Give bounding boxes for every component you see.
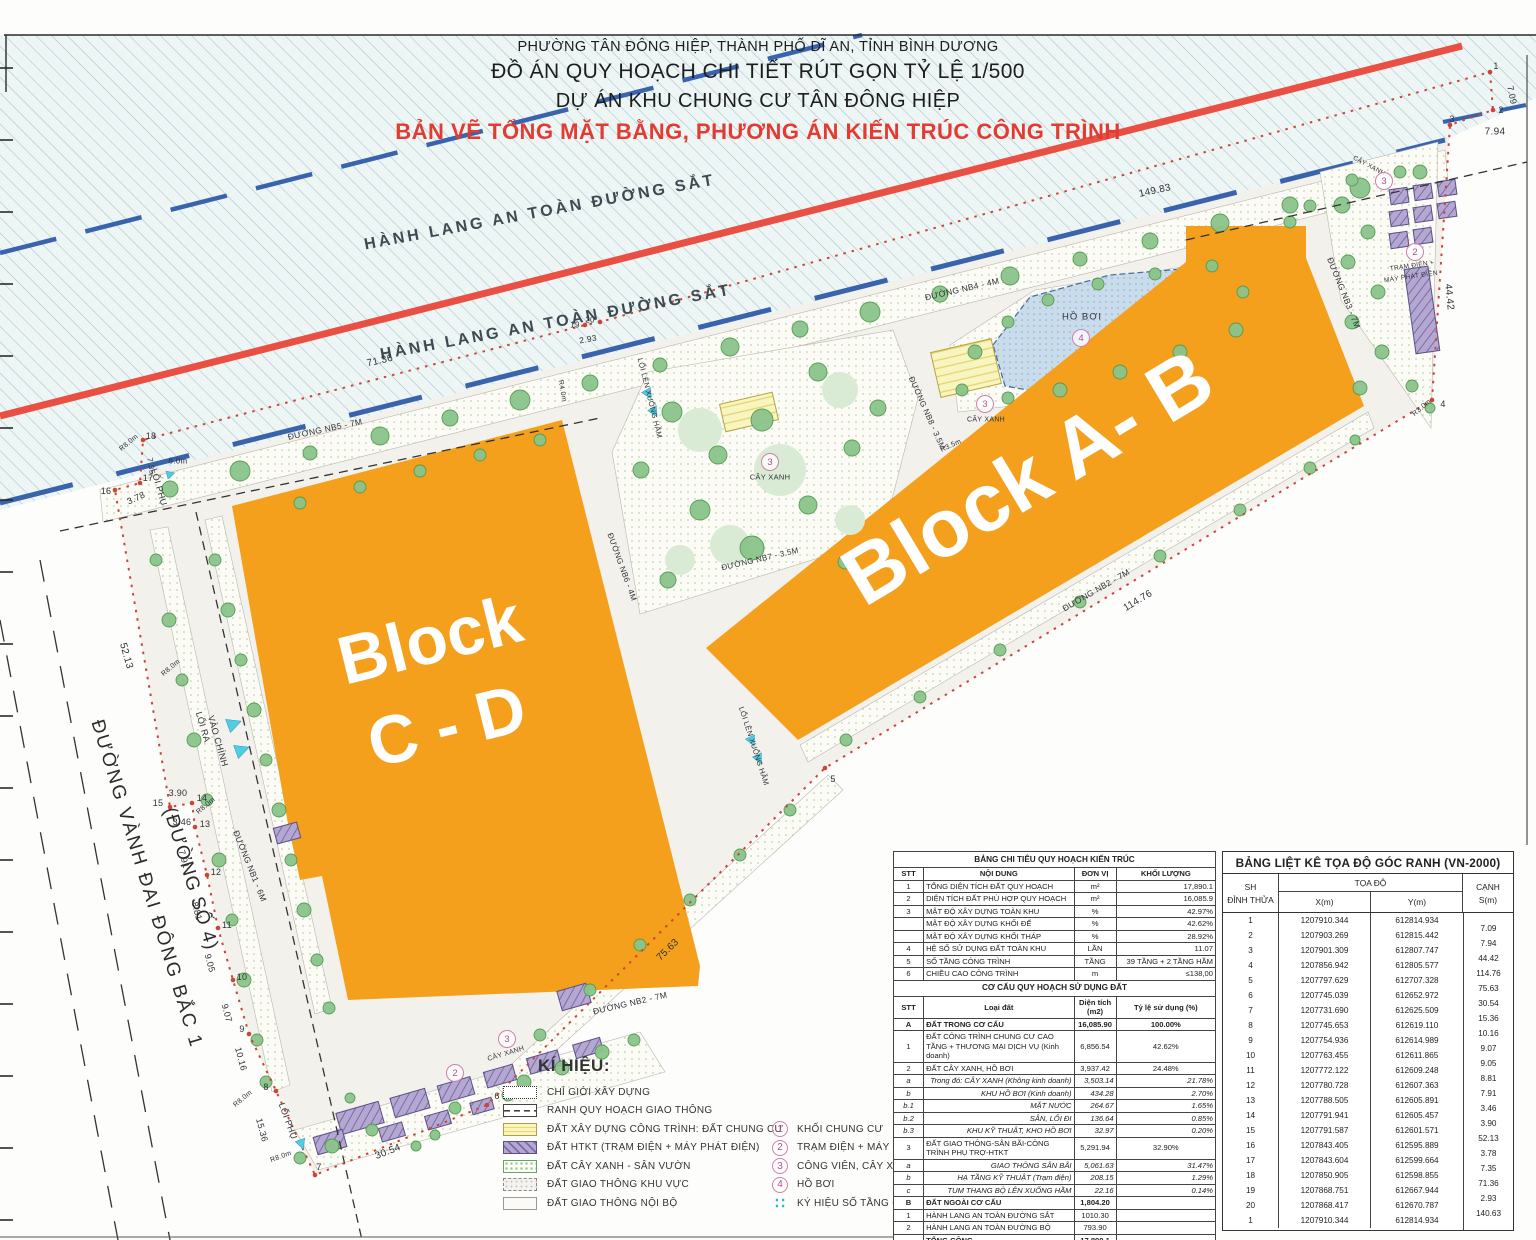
table-row: 5SỐ TẦNG CÔNG TRÌNH TẦNG39 TẦNG + 2 TẦNG… [894, 955, 1216, 967]
legend-item-label: ĐẤT CÂY XANH - SÂN VƯỜN [547, 1161, 691, 1172]
legend-item: RANH QUY HOẠCH GIAO THÔNG [503, 1104, 783, 1118]
table-row: AĐẤT TRONG CƠ CẤU 16,085.90100.00% [894, 1018, 1216, 1030]
legend-item-label: ĐẤT GIAO THÔNG KHU VỰC [547, 1179, 689, 1190]
table-row: b.2SÂN, LỐI ĐI 136.640.85% [894, 1112, 1216, 1124]
plan-label: 18 [146, 431, 157, 441]
edge-length-value: 8.81 [1464, 1071, 1513, 1086]
table-row: TỔNG CỘNG 17,890.1 [894, 1234, 1216, 1240]
legend-item: ĐẤT HTKT (TRẠM ĐIỆN + MÁY PHÁT ĐIỆN) [503, 1141, 783, 1155]
legend-symbol: 3 [772, 1158, 788, 1174]
sheet-title-line: BẢN VẼ TỔNG MẶT BẰNG, PHƯƠNG ÁN KIẾN TRÚ… [395, 115, 1120, 149]
table-row: 2DIỆN TÍCH ĐẤT PHÙ HỢP QUY HOẠCH m²16,08… [894, 893, 1216, 905]
plan-label: 1 [1493, 61, 1498, 71]
table-row: 1HÀNH LANG AN TOÀN ĐƯỜNG SẮT 1010.30 [894, 1209, 1216, 1221]
plan-label: HỒ BƠI [1062, 312, 1102, 323]
circled-number: 4 [1072, 329, 1090, 347]
table-header-row: STTNỘI DUNG ĐƠN VỊKHỐI LƯỢNG [894, 868, 1216, 880]
legend-item-label: RANH QUY HOẠCH GIAO THÔNG [547, 1105, 712, 1116]
table-row: 3ĐẤT GIAO THÔNG-SÂN BÃI-CÔNG TRÌNH PHỤ T… [894, 1137, 1216, 1159]
legend-item-label: HỒ BƠI [797, 1179, 835, 1190]
table-row: 3MẬT ĐỘ XÂY DỰNG TOÀN KHU %42.97% [894, 905, 1216, 917]
legend-swatch [503, 1141, 537, 1154]
plan-label: 9 [239, 1024, 244, 1034]
table-row: 6CHIỀU CAO CÔNG TRÌNH m≤138,00 [894, 968, 1216, 980]
edge-length-value: 3.46 [1464, 1101, 1513, 1116]
plan-label: 6.0m [169, 457, 188, 466]
legend-item: ĐẤT XÂY DỰNG CÔNG TRÌNH: ĐẤT CHUNG CƯ [503, 1122, 783, 1136]
legend-item: ĐẤT CÂY XANH - SÂN VƯỜN [503, 1159, 783, 1173]
table-row: 2ĐẤT CÂY XANH, HỒ BƠI 3,937.4224.48% [894, 1062, 1216, 1074]
circled-number: 3 [1375, 172, 1393, 190]
plan-label: 16 [101, 486, 112, 496]
edge-length-value: 9.05 [1464, 1056, 1513, 1071]
plan-label: 3.90 [169, 788, 188, 798]
legend-item: CHỈ GIỚI XÂY DỰNG [503, 1085, 783, 1099]
legend-item-label: KHỐI CHUNG CƯ [797, 1124, 883, 1135]
legend-swatch [503, 1178, 537, 1191]
table-row: 1ĐẤT CÔNG TRÌNH CHUNG CƯ CAO TẦNG + THƯƠ… [894, 1031, 1216, 1062]
locality-line: PHƯỜNG TÂN ĐÔNG HIỆP, THÀNH PHỐ DĨ AN, T… [395, 38, 1120, 57]
edge-length-value: 30.54 [1464, 996, 1513, 1011]
plan-label: 3 [1449, 114, 1454, 124]
planning-indicators-table: BẢNG CHI TIÊU QUY HOẠCH KIẾN TRÚC STTNỘI… [893, 851, 1216, 1240]
legend-swatch [503, 1197, 537, 1210]
project-name-line: DỰ ÁN KHU CHUNG CƯ TÂN ĐÔNG HIỆP [395, 87, 1120, 115]
plan-label: 4 [1440, 399, 1445, 409]
plan-label: 13 [200, 819, 211, 829]
plan-label: 7 [316, 1162, 321, 1172]
site-plan-drawing: PHƯỜNG TÂN ĐÔNG HIỆP, THÀNH PHỐ DĨ AN, T… [0, 0, 1536, 1240]
legend-swatch [503, 1086, 537, 1099]
edge-length-value: 10.16 [1464, 1026, 1513, 1041]
table-row: cTUM THANG BỘ LÊN XUỐNG HẦM 22.160.14% [894, 1184, 1216, 1196]
legend-item-label: CHỈ GIỚI XÂY DỰNG [547, 1087, 650, 1098]
plan-label: 15 [153, 798, 164, 808]
edge-length-value: 7.35 [1464, 1161, 1513, 1176]
table-row: b.1MẶT NƯỚC 264.671.65% [894, 1100, 1216, 1112]
edge-length-value: 7.91 [1464, 1086, 1513, 1101]
plan-label: 10 [237, 972, 248, 982]
edge-length-value: 15.36 [1464, 1011, 1513, 1026]
plan-label: 5 [830, 774, 835, 784]
legend-symbol: 2 [772, 1140, 788, 1156]
table-row: MẬT ĐỘ XÂY DỰNG KHỐI ĐẾ %42.62% [894, 918, 1216, 930]
circled-number: 3 [761, 453, 779, 471]
edge-length-value: 71.36 [1464, 1176, 1513, 1191]
legend-title: KÍ HIỆU: [538, 1056, 610, 1076]
circled-number: 2 [1406, 243, 1424, 261]
plan-label: 7.94 [1485, 127, 1506, 138]
legend-item: ĐẤT GIAO THÔNG KHU VỰC [503, 1178, 783, 1192]
edge-length-value: 52.13 [1464, 1131, 1513, 1146]
project-type-line: ĐỒ ÁN QUY HOẠCH CHI TIẾT RÚT GỌN TỶ LỆ 1… [395, 57, 1120, 87]
legend-item-label: ĐẤT GIAO THÔNG NỘI BỘ [547, 1198, 677, 1209]
table-row: bKHU HỒ BƠI (Kinh doanh) 434.282.70% [894, 1087, 1216, 1099]
plan-label: 2 [1498, 105, 1503, 115]
legend-symbol: 4 [772, 1177, 788, 1193]
plan-label: 11 [222, 920, 232, 930]
plan-label: 17 [143, 473, 154, 483]
legend-swatch [503, 1160, 537, 1173]
edge-length-value: 3.78 [1464, 1146, 1513, 1161]
legend-item-label: ĐẤT HTKT (TRẠM ĐIỆN + MÁY PHÁT ĐIỆN) [547, 1142, 760, 1153]
plan-label: 6 [494, 1091, 499, 1101]
plan-label: CÂY XANH [750, 473, 791, 482]
table-header-row: SH ĐỈNH THỬA TỌA ĐỘ X(m) Y(m) CẠNH S(m) [1223, 874, 1513, 913]
table-row: BĐẤT NGOÀI CƠ CẤU 1,804.20 [894, 1197, 1216, 1209]
drawing-title-block: PHƯỜNG TÂN ĐÔNG HIỆP, THÀNH PHỐ DĨ AN, T… [395, 38, 1120, 149]
legend-symbol: 1 [772, 1121, 788, 1137]
edge-length-value: 7.94 [1464, 936, 1513, 951]
table-row: aGIAO THÔNG SÂN BÃI 5,061.6331.47% [894, 1159, 1216, 1171]
circled-number: 3 [498, 1030, 516, 1048]
edge-length-value: 140.63 [1464, 1206, 1513, 1221]
table-row: aTrong đó: CÂY XANH (Không kinh doanh) 3… [894, 1075, 1216, 1087]
legend-item: ĐẤT GIAO THÔNG NỘI BỘ [503, 1196, 783, 1210]
legend-swatch-list: CHỈ GIỚI XÂY DỰNG RANH QUY HOẠCH GIAO TH… [503, 1085, 783, 1215]
coordinates-table: BẢNG LIỆT KÊ TỌA ĐỘ GÓC RANH (VN-2000) S… [1222, 851, 1514, 1231]
edge-length-value: 114.76 [1464, 966, 1513, 981]
edge-length-value: 44.42 [1464, 951, 1513, 966]
legend-swatch [503, 1104, 537, 1117]
table-row: 2HÀNH LANG AN TOÀN ĐƯỜNG BỘ 793.90 [894, 1222, 1216, 1234]
edge-length-column: 7.097.9444.42114.7675.6330.5415.3610.169… [1463, 913, 1513, 1230]
plan-label: 20 [585, 316, 595, 325]
plan-label: 14 [197, 793, 208, 803]
edge-length-value: 2.93 [1464, 1191, 1513, 1206]
table-title: BẢNG LIỆT KÊ TỌA ĐỘ GÓC RANH (VN-2000) [1223, 852, 1513, 874]
legend-swatch [503, 1123, 537, 1136]
legend-item-label: ĐẤT XÂY DỰNG CÔNG TRÌNH: ĐẤT CHUNG CƯ [547, 1124, 783, 1135]
edge-length-value: 7.09 [1464, 921, 1513, 936]
table-row: MẬT ĐỘ XÂY DỰNG KHỐI THÁP %28.92% [894, 930, 1216, 942]
plan-label: CÂY XANH [967, 417, 1005, 424]
table-row: bHẠ TẦNG KỸ THUẬT (Trạm điện) 208.151.29… [894, 1172, 1216, 1184]
table-subtitle: CƠ CẤU QUY HOẠCH SỬ DỤNG ĐẤT [894, 980, 1216, 996]
table-title: BẢNG CHI TIÊU QUY HOẠCH KIẾN TRÚC [894, 852, 1216, 868]
table-row: 4HỆ SỐ SỬ DỤNG ĐẤT TOÀN KHU LẦN11.07 [894, 943, 1216, 955]
legend-symbol: ∷ [772, 1195, 788, 1211]
edge-length-value: 75.63 [1464, 981, 1513, 996]
circled-number: 3 [976, 395, 994, 413]
circled-number: 2 [446, 1064, 464, 1082]
table-header-row: STTLoại đất Diện tích (m2)Tỷ lệ sử dụng … [894, 996, 1216, 1018]
table-row: b.3KHU KỸ THUẬT, KHO HỒ BƠI 32.970.20% [894, 1125, 1216, 1137]
plan-label: 3.46 [173, 817, 192, 827]
edge-length-value: 9.07 [1464, 1041, 1513, 1056]
edge-length-value: 3.90 [1464, 1116, 1513, 1131]
plan-label: 8 [263, 1082, 268, 1092]
plan-label: 12 [211, 867, 222, 877]
table-row: 1TỔNG DIỆN TÍCH ĐẤT QUY HOẠCH m²17,890.1 [894, 880, 1216, 892]
plan-label: 19 [570, 321, 580, 330]
